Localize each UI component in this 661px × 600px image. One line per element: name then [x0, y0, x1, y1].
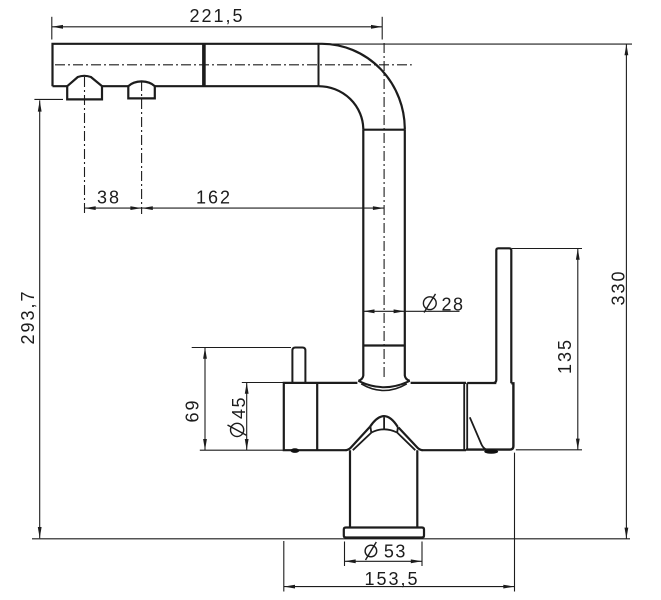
svg-text:38: 38 — [97, 188, 121, 208]
svg-text:293,7: 293,7 — [18, 289, 38, 344]
svg-text:221,5: 221,5 — [189, 6, 244, 26]
svg-text:330: 330 — [609, 269, 629, 305]
svg-text:135: 135 — [555, 338, 575, 374]
svg-text:153,5: 153,5 — [364, 569, 419, 589]
svg-text:162: 162 — [196, 188, 232, 208]
svg-text:53: 53 — [384, 542, 407, 562]
svg-text:45: 45 — [229, 396, 249, 419]
svg-text:69: 69 — [183, 398, 203, 422]
svg-text:28: 28 — [442, 294, 465, 314]
